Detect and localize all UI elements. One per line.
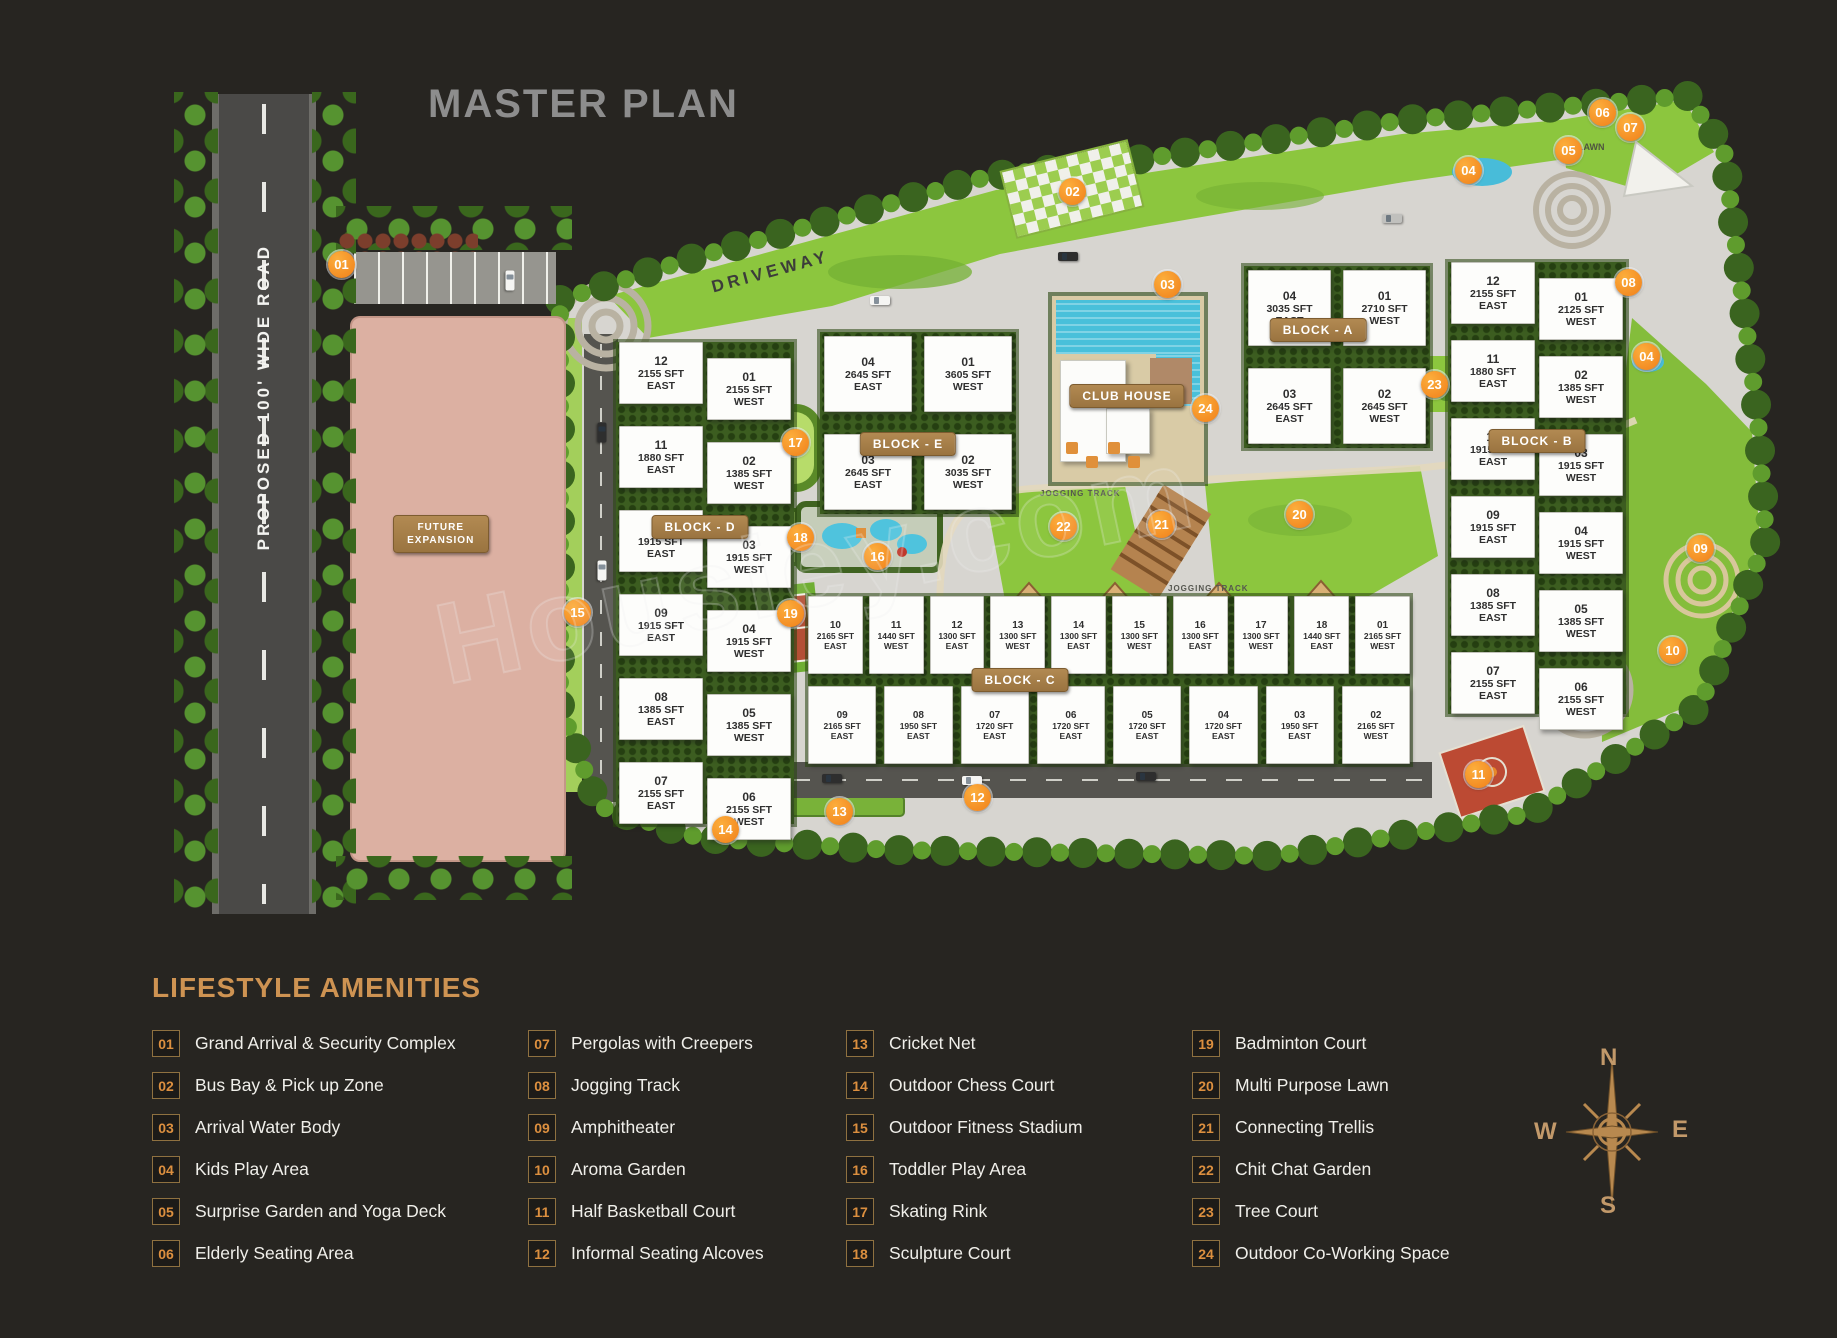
legend-item-label: Amphitheater xyxy=(556,1117,675,1138)
legend-item: 13 Cricket Net xyxy=(846,1030,1083,1057)
legend-item: 19 Badminton Court xyxy=(1192,1030,1450,1057)
club-house-label: CLUB HOUSE xyxy=(1069,384,1184,408)
legend-item-number: 24 xyxy=(1192,1240,1220,1267)
unit-tile: 18 1440 SFT EAST xyxy=(1294,596,1349,674)
legend-item-label: Arrival Water Body xyxy=(180,1117,340,1138)
legend-item-label: Sculpture Court xyxy=(874,1243,1011,1264)
legend-item-number: 12 xyxy=(528,1240,556,1267)
unit-tile: 04 1915 SFT WEST xyxy=(1539,512,1623,574)
legend-item: 08 Jogging Track xyxy=(528,1072,764,1099)
block-b-label: BLOCK - B xyxy=(1489,429,1586,453)
legend-item: 02 Bus Bay & Pick up Zone xyxy=(152,1072,456,1099)
legend-item-number: 10 xyxy=(528,1156,556,1183)
unit-tile: 16 1300 SFT EAST xyxy=(1173,596,1228,674)
legend-item-label: Elderly Seating Area xyxy=(180,1243,354,1264)
legend-item: 22 Chit Chat Garden xyxy=(1192,1156,1450,1183)
legend-item-label: Outdoor Chess Court xyxy=(874,1075,1054,1096)
unit-tile: 07 2155 SFT EAST xyxy=(1451,652,1535,714)
unit-tile: 10 2165 SFT EAST xyxy=(808,596,863,674)
unit-tile: 01 2165 SFT WEST xyxy=(1355,596,1410,674)
legend-item-number: 18 xyxy=(846,1240,874,1267)
block-d-label: BLOCK - D xyxy=(652,515,749,539)
unit-tile: 12 2155 SFT EAST xyxy=(1451,262,1535,324)
lounger xyxy=(1086,456,1098,468)
legend-item-number: 02 xyxy=(152,1072,180,1099)
legend-item-number: 04 xyxy=(152,1156,180,1183)
unit-tile: 05 1385 SFT WEST xyxy=(707,694,791,756)
legend-item-number: 07 xyxy=(528,1030,556,1057)
legend-item-number: 17 xyxy=(846,1198,874,1225)
unit-tile: 03 2645 SFT EAST xyxy=(1248,368,1331,444)
legend-item: 20 Multi Purpose Lawn xyxy=(1192,1072,1450,1099)
legend-item-number: 15 xyxy=(846,1114,874,1141)
unit-tile: 02 1385 SFT WEST xyxy=(1539,356,1623,418)
block-a: 04 3035 SFT EAST 01 2710 SFT WEST 03 264… xyxy=(1244,266,1430,448)
block-c: 10 2165 SFT EAST 11 1440 SFT WEST 12 130… xyxy=(808,596,1410,764)
legend-item-label: Half Basketball Court xyxy=(556,1201,735,1222)
legend-item-label: Chit Chat Garden xyxy=(1220,1159,1371,1180)
legend-item: 05 Surprise Garden and Yoga Deck xyxy=(152,1198,456,1225)
legend-item-label: Kids Play Area xyxy=(180,1159,309,1180)
car xyxy=(822,774,842,783)
legend-item: 12 Informal Seating Alcoves xyxy=(528,1240,764,1267)
legend-item-number: 14 xyxy=(846,1072,874,1099)
car xyxy=(1382,214,1402,223)
lounger xyxy=(1108,442,1120,454)
compass-north: N xyxy=(1600,1044,1617,1072)
legend-item-label: Cricket Net xyxy=(874,1033,976,1054)
unit-tile: 02 2165 SFT WEST xyxy=(1342,686,1410,764)
unit-tile: 01 2125 SFT WEST xyxy=(1539,278,1623,340)
future-expansion-area: FUTURE EXPANSION xyxy=(350,316,566,862)
unit-tile: 08 1385 SFT EAST xyxy=(1451,574,1535,636)
car xyxy=(962,776,982,785)
legend-item-number: 21 xyxy=(1192,1114,1220,1141)
unit-tile: 07 1720 SFT EAST xyxy=(961,686,1029,764)
lounger xyxy=(1128,456,1140,468)
jogging-track-label: JOGGING TRACK xyxy=(1168,584,1249,593)
legend-item-number: 23 xyxy=(1192,1198,1220,1225)
legend-item: 17 Skating Rink xyxy=(846,1198,1083,1225)
legend-item-number: 19 xyxy=(1192,1030,1220,1057)
unit-tile: 08 1950 SFT EAST xyxy=(884,686,952,764)
entrance-parking xyxy=(354,252,556,304)
unit-tile: 01 3605 SFT WEST xyxy=(924,336,1012,412)
unit-tile: 15 1300 SFT WEST xyxy=(1112,596,1167,674)
unit-tile: 09 1915 SFT EAST xyxy=(1451,496,1535,558)
block-c-label: BLOCK - C xyxy=(972,668,1069,692)
compass-south: S xyxy=(1600,1192,1616,1220)
legend-item: 09 Amphitheater xyxy=(528,1114,764,1141)
car xyxy=(1136,772,1156,781)
block-a-label: BLOCK - A xyxy=(1270,318,1367,342)
car xyxy=(598,561,607,581)
unit-tile: 06 2155 SFT WEST xyxy=(1539,668,1623,730)
unit-tile: 13 1300 SFT WEST xyxy=(990,596,1045,674)
future-expansion-label: FUTURE EXPANSION xyxy=(393,515,489,553)
legend-item: 18 Sculpture Court xyxy=(846,1240,1083,1267)
unit-tile: 07 2155 SFT EAST xyxy=(619,762,703,824)
unit-tile: 06 2155 SFT WEST xyxy=(707,778,791,840)
legend-item: 21 Connecting Trellis xyxy=(1192,1114,1450,1141)
legend-item-label: Tree Court xyxy=(1220,1201,1318,1222)
legend-item-label: Grand Arrival & Security Complex xyxy=(180,1033,456,1054)
legend-item-number: 06 xyxy=(152,1240,180,1267)
entrance-hedge xyxy=(338,232,478,252)
legend-item-label: Aroma Garden xyxy=(556,1159,686,1180)
legend-item-number: 03 xyxy=(152,1114,180,1141)
unit-tile: 04 1720 SFT EAST xyxy=(1189,686,1257,764)
swimming-pool xyxy=(1056,300,1200,354)
block-b: 12 2155 SFT EAST 11 1880 SFT EAST 10 191… xyxy=(1448,262,1626,714)
compass-east: E xyxy=(1672,1116,1688,1144)
legend-item-label: Pergolas with Creepers xyxy=(556,1033,753,1054)
legend-item-number: 22 xyxy=(1192,1156,1220,1183)
master-plan-poster: MASTER PLAN PROPOSED 100' WIDE ROAD FUTU… xyxy=(0,0,1837,1338)
legend-item: 15 Outdoor Fitness Stadium xyxy=(846,1114,1083,1141)
legend-heading: LIFESTYLE AMENITIES xyxy=(152,972,1712,1004)
unit-tile: 11 1440 SFT WEST xyxy=(869,596,924,674)
car xyxy=(870,296,890,305)
compass-rose xyxy=(1560,1056,1664,1208)
car xyxy=(598,423,607,443)
unit-tile: 05 1385 SFT WEST xyxy=(1539,590,1623,652)
legend-item-label: Surprise Garden and Yoga Deck xyxy=(180,1201,446,1222)
legend-item-label: Connecting Trellis xyxy=(1220,1117,1374,1138)
legend-item-number: 05 xyxy=(152,1198,180,1225)
unit-tile: 09 1915 SFT EAST xyxy=(619,594,703,656)
proposed-road: PROPOSED 100' WIDE ROAD xyxy=(212,94,316,914)
car xyxy=(1058,252,1078,261)
legend-item: 14 Outdoor Chess Court xyxy=(846,1072,1083,1099)
unit-tile: 02 2645 SFT WEST xyxy=(1343,368,1426,444)
lawn-label: LAWN xyxy=(1578,142,1605,152)
legend-item-number: 09 xyxy=(528,1114,556,1141)
legend-item-number: 20 xyxy=(1192,1072,1220,1099)
tree-row-expansion-bottom xyxy=(336,856,572,900)
jogging-track-label: JOGGING TRACK xyxy=(1040,489,1121,498)
block-d: 12 2155 SFT EAST 11 1880 SFT EAST 10 191… xyxy=(616,342,794,824)
unit-tile: 04 1915 SFT WEST xyxy=(707,610,791,672)
unit-tile: 03 1950 SFT EAST xyxy=(1266,686,1334,764)
lounger xyxy=(1066,442,1078,454)
unit-tile: 11 1880 SFT EAST xyxy=(619,426,703,488)
legend-item: 11 Half Basketball Court xyxy=(528,1198,764,1225)
legend-item-label: Skating Rink xyxy=(874,1201,987,1222)
road-label: PROPOSED 100' WIDE ROAD xyxy=(254,244,274,550)
page-title: MASTER PLAN xyxy=(428,82,739,127)
legend-item-number: 01 xyxy=(152,1030,180,1057)
legend-item-label: Jogging Track xyxy=(556,1075,680,1096)
unit-tile: 14 1300 SFT EAST xyxy=(1051,596,1106,674)
legend: LIFESTYLE AMENITIES 01 Grand Arrival & S… xyxy=(152,972,1712,1030)
unit-tile: 02 1385 SFT WEST xyxy=(707,442,791,504)
legend-item: 06 Elderly Seating Area xyxy=(152,1240,456,1267)
legend-item: 16 Toddler Play Area xyxy=(846,1156,1083,1183)
legend-item: 24 Outdoor Co-Working Space xyxy=(1192,1240,1450,1267)
unit-tile: 06 1720 SFT EAST xyxy=(1037,686,1105,764)
compass-west: W xyxy=(1534,1118,1557,1146)
legend-item: 23 Tree Court xyxy=(1192,1198,1450,1225)
unit-tile: 12 1300 SFT EAST xyxy=(930,596,985,674)
unit-tile: 04 2645 SFT EAST xyxy=(824,336,912,412)
legend-item-label: Badminton Court xyxy=(1220,1033,1366,1054)
unit-tile: 08 1385 SFT EAST xyxy=(619,678,703,740)
legend-item-label: Outdoor Co-Working Space xyxy=(1220,1243,1450,1264)
legend-item-label: Informal Seating Alcoves xyxy=(556,1243,764,1264)
legend-item-label: Toddler Play Area xyxy=(874,1159,1026,1180)
legend-item-label: Outdoor Fitness Stadium xyxy=(874,1117,1083,1138)
unit-tile: 09 2165 SFT EAST xyxy=(808,686,876,764)
legend-item-number: 13 xyxy=(846,1030,874,1057)
legend-item-label: Multi Purpose Lawn xyxy=(1220,1075,1389,1096)
legend-item: 10 Aroma Garden xyxy=(528,1156,764,1183)
block-e: 04 2645 SFT EAST 01 3605 SFT WEST 03 264… xyxy=(820,332,1016,514)
tree-row-road-left xyxy=(174,92,218,914)
legend-item: 04 Kids Play Area xyxy=(152,1156,456,1183)
legend-item: 03 Arrival Water Body xyxy=(152,1114,456,1141)
legend-item-number: 11 xyxy=(528,1198,556,1225)
block-e-label: BLOCK - E xyxy=(860,432,956,456)
unit-tile: 05 1720 SFT EAST xyxy=(1113,686,1181,764)
unit-tile: 01 2155 SFT WEST xyxy=(707,358,791,420)
legend-item: 01 Grand Arrival & Security Complex xyxy=(152,1030,456,1057)
unit-tile: 12 2155 SFT EAST xyxy=(619,342,703,404)
legend-item-number: 08 xyxy=(528,1072,556,1099)
unit-tile: 11 1880 SFT EAST xyxy=(1451,340,1535,402)
legend-item: 07 Pergolas with Creepers xyxy=(528,1030,764,1057)
legend-item-label: Bus Bay & Pick up Zone xyxy=(180,1075,384,1096)
car xyxy=(506,271,515,291)
unit-tile: 17 1300 SFT WEST xyxy=(1234,596,1289,674)
legend-item-number: 16 xyxy=(846,1156,874,1183)
